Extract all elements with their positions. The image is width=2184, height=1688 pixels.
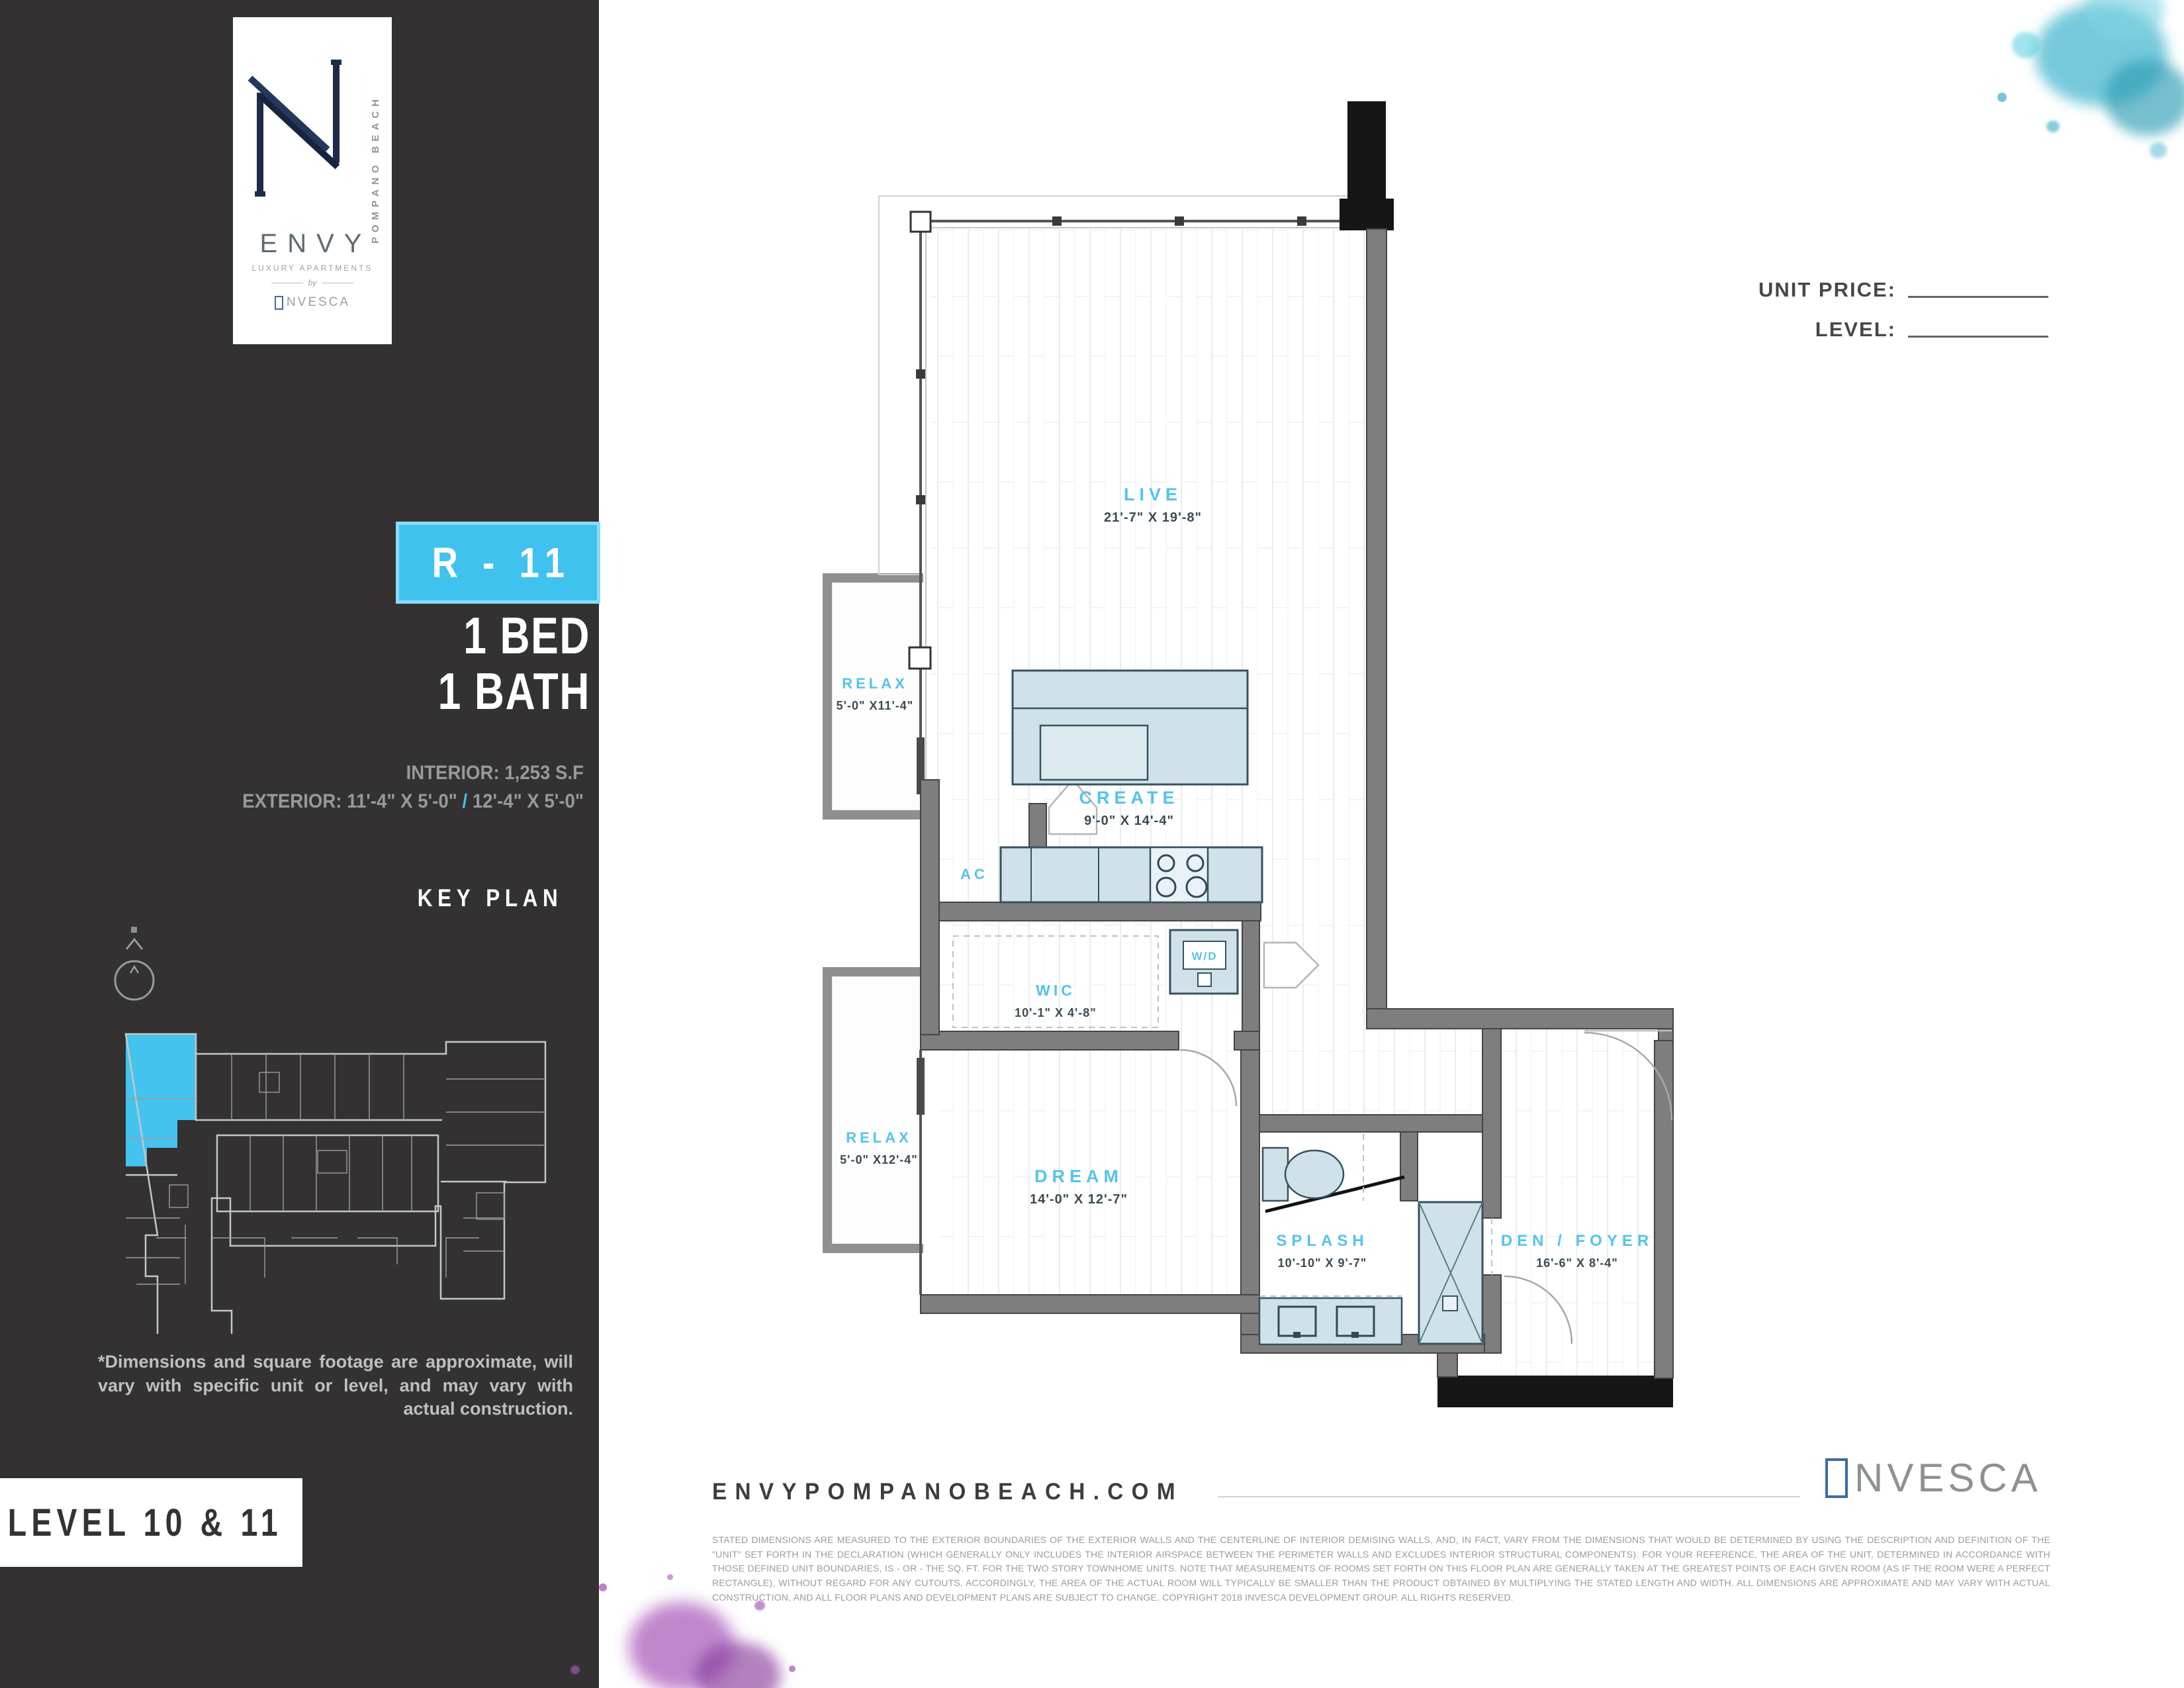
room-label-wic: WIC [1036,982,1075,999]
vanity-icon [1259,1298,1402,1344]
room-dims-dream: 14'-0" X 12'-7" [1030,1192,1128,1207]
exterior-area: EXTERIOR: 11'-4" X 5'-0" / 12'-4" X 5'-0… [120,787,584,816]
unit-number-badge: R - 11 [396,522,600,604]
room-label-create: CREATE [1079,788,1179,808]
brand-tagline: LUXURY APARTMENTS [233,263,392,273]
room-dims-relax-upper: 5'-0" X11'-4" [837,699,914,712]
sidebar: POMPANO BEACH ENVY LUXURY APARTMENTS by … [0,0,599,1688]
room-dims-wic: 10'-1" X 4'-8" [1015,1006,1097,1019]
room-label-den-foyer: DEN / FOYER [1501,1232,1653,1250]
website-url: ENVYPOMPANOBEACH.COM [712,1479,1183,1505]
exterior-slash: / [462,790,467,812]
brand-name: ENVY [233,229,392,259]
key-plan-map [106,1019,576,1334]
sidebar-disclaimer: *Dimensions and square footage are appro… [98,1350,573,1421]
divider [271,283,303,283]
room-dims-den-foyer: 16'-6" X 8'-4" [1536,1256,1618,1270]
room-label-relax-upper: RELAX [842,675,908,692]
logo-vertical-text: POMPANO BEACH [370,45,381,244]
divider [322,283,353,283]
bed-bath-summary: 1 BED 1 BATH [199,608,590,719]
brochure-page: POMPANO BEACH ENVY LUXURY APARTMENTS by … [0,0,2184,1688]
level-box: LEVEL 10 & 11 [0,1476,304,1569]
bath-count: 1 BATH [277,663,590,719]
interior-area: INTERIOR: 1,253 S.F [120,759,584,787]
kitchen-counter-icon [1001,847,1262,902]
room-label-dream: DREAM [1034,1166,1123,1186]
level-blank-line [1908,336,2048,338]
legal-fine-print: STATED DIMENSIONS ARE MEASURED TO THE EX… [712,1533,2050,1605]
kitchen-island-icon [1013,671,1248,784]
shower-icon [1419,1202,1482,1344]
exterior-dims-2: 12'-4" X 5'-0" [473,790,584,812]
room-dims-live: 21'-7" X 19'-8" [1104,510,1202,525]
room-dims-create: 9'-0" X 14'-4" [1084,814,1174,828]
floor-plan: LIVE 21'-7" X 19'-8" RELAX 5'-0" X11'-4"… [754,85,1702,1417]
area-summary: INTERIOR: 1,253 S.F EXTERIOR: 11'-4" X 5… [79,759,584,816]
logo-developer-name: NVESCA [287,295,350,310]
unit-price-label: UNIT PRICE: [1758,278,1896,302]
invesca-logo-text: NVESCA [1854,1455,2042,1501]
room-dims-relax-lower: 5'-0" X12'-4" [840,1153,918,1166]
room-label-relax-lower: RELAX [846,1129,912,1146]
invesca-i-icon [275,296,283,310]
by-label: by [308,278,317,287]
level-label: LEVEL 10 & 11 [8,1501,283,1545]
room-dims-splash: 10'-10" X 9'-7" [1278,1256,1367,1270]
envy-n-monogram-icon [248,56,350,214]
bed-count: 1 BED [277,608,590,663]
brand-by-row: by [233,278,392,287]
room-label-ac: AC [960,866,988,882]
room-label-live: LIVE [1124,485,1182,504]
toilet-icon [1263,1148,1343,1201]
north-arrow-icon [105,925,164,1011]
key-plan-title: KEY PLAN [99,884,599,912]
logo-developer-row: NVESCA [233,295,392,310]
unit-price-blank-line [1908,296,2048,298]
footer-divider [1218,1496,1800,1497]
envy-logo-card: POMPANO BEACH ENVY LUXURY APARTMENTS by … [233,17,392,344]
exterior-dims-1: EXTERIOR: 11'-4" X 5'-0" [242,790,457,812]
unit-number: R - 11 [424,538,571,587]
room-label-splash: SPLASH [1276,1232,1368,1250]
invesca-i-icon [1825,1458,1848,1498]
invesca-logo: NVESCA [1825,1455,2042,1501]
level-field-label: LEVEL: [1815,318,1896,342]
room-label-wd: W/D [1191,950,1217,962]
